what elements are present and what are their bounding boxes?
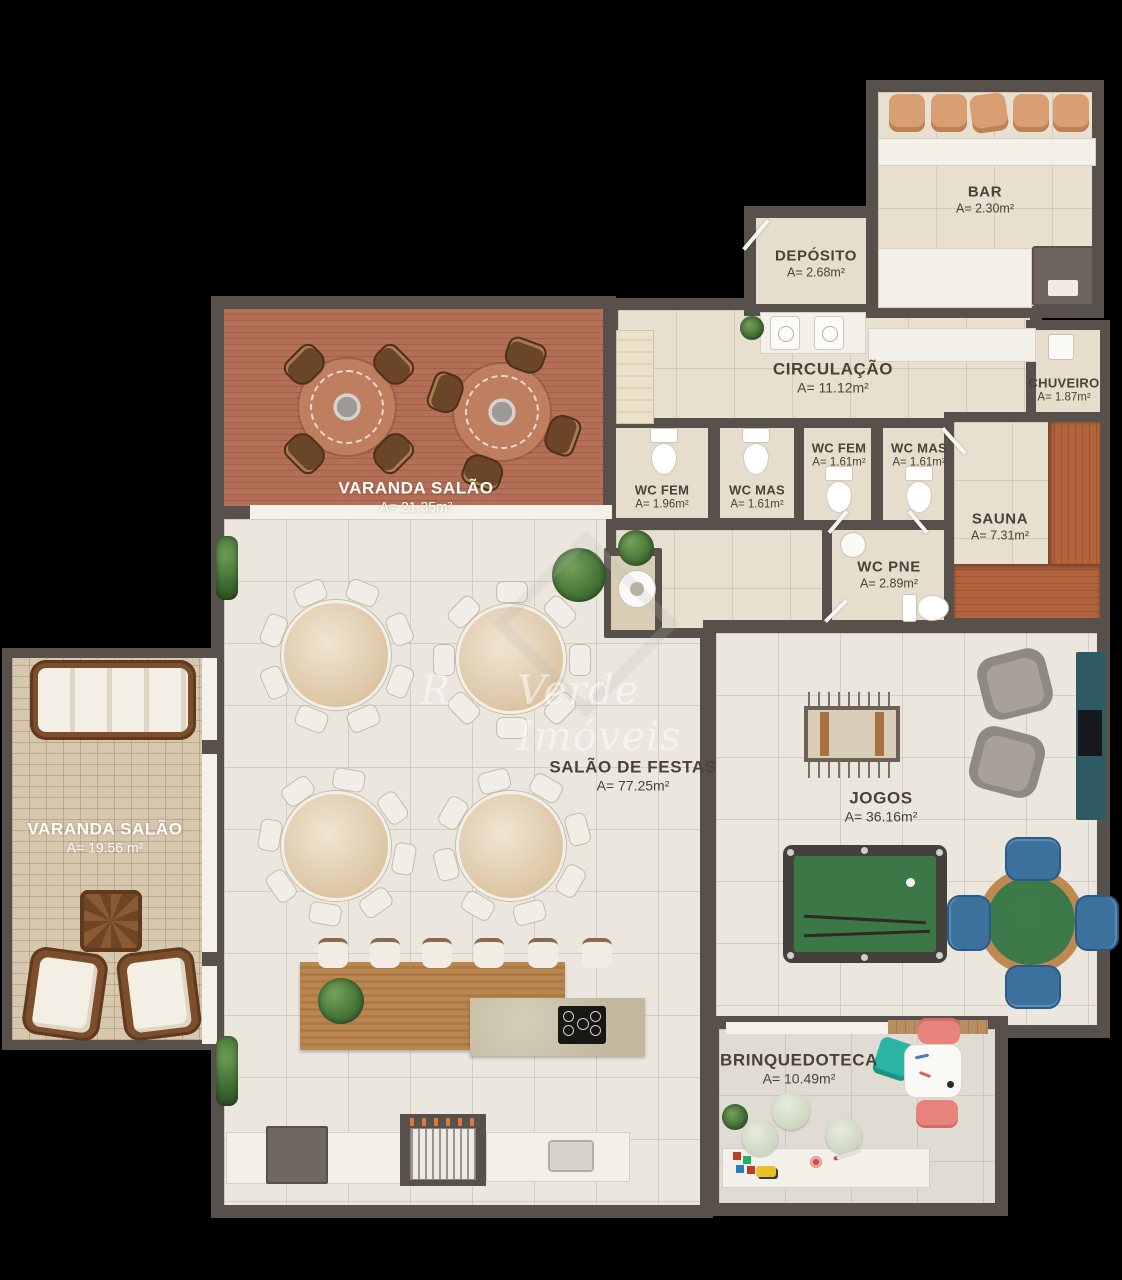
kids-plant	[722, 1104, 748, 1130]
island-stool	[582, 938, 612, 968]
wicker-side-table	[80, 890, 142, 952]
kitchen-sink	[548, 1140, 594, 1172]
pocket	[861, 954, 868, 961]
tv-console	[1076, 652, 1106, 820]
bar-stool	[1013, 94, 1049, 132]
pocket	[936, 952, 943, 959]
sauna-bench-bottom	[954, 564, 1100, 618]
toilet-bowl	[917, 595, 949, 621]
room-area: A= 1.61m²	[812, 456, 867, 470]
patio-table	[454, 364, 550, 460]
pocket	[787, 849, 794, 856]
room-label-wc-pne: WC PNE A= 2.89m²	[857, 559, 921, 592]
room-label-varanda-top: VARANDA SALÃO A= 21.35m²	[338, 478, 493, 515]
room-label-deposito: DEPÓSITO A= 2.68m²	[775, 248, 857, 281]
sofa-cushions	[38, 668, 188, 732]
island-stool	[474, 938, 504, 968]
cooktop	[558, 1006, 606, 1044]
pool-felt	[794, 856, 936, 952]
bar-counter	[878, 138, 1096, 166]
room-label-chuveiro: CHUVEIRO A= 1.87m²	[1028, 375, 1099, 404]
table-ring	[465, 375, 539, 449]
bar-stool	[931, 94, 967, 132]
plant-hedge	[216, 1036, 238, 1106]
room-area: A= 2.30m²	[956, 202, 1014, 217]
hall-counter	[868, 328, 1036, 362]
room-name: CHUVEIRO	[1028, 375, 1099, 391]
toilet-bowl	[826, 481, 852, 513]
pouf	[742, 1120, 778, 1156]
kids-chair-pink	[916, 1100, 958, 1128]
bar-stool	[969, 92, 1010, 135]
kids-table	[904, 1044, 962, 1098]
room-area: A= 2.68m²	[775, 266, 857, 281]
pocket	[936, 849, 943, 856]
watermark-text-row: R Verde Imóveis	[420, 668, 780, 760]
room-label-wc-fem-small: WC FEM A= 1.61m²	[812, 440, 867, 469]
patio-table	[299, 359, 395, 455]
room-label-bar: BAR A= 2.30m²	[956, 184, 1014, 217]
room-name: WC MAS	[729, 482, 785, 498]
toilet	[742, 428, 768, 474]
chair	[1005, 837, 1061, 881]
room-area: A= 1.61m²	[891, 456, 947, 470]
foosball-goal	[875, 712, 884, 756]
floorplan: VARANDA SALÃO A= 21.35m² VARANDA SALÃO A…	[0, 0, 1122, 1280]
foosball-goal	[820, 712, 829, 756]
room-area: A= 1.96m²	[635, 498, 690, 512]
chair	[1075, 895, 1119, 951]
room-label-brinquedoteca: BRINQUEDOTECA A= 10.49m²	[720, 1050, 878, 1087]
chair-cushion	[126, 957, 192, 1034]
room-name: DEPÓSITO	[775, 248, 857, 266]
pouf	[772, 1092, 810, 1130]
toilet-bowl	[906, 481, 932, 513]
charcoal-grill	[410, 1128, 476, 1180]
toilet-accessible	[902, 596, 948, 622]
vanity-sink	[814, 316, 844, 350]
foosball-table	[804, 706, 900, 762]
room-name: WC PNE	[857, 559, 921, 577]
room-area: A= 36.16m²	[845, 809, 918, 826]
room-name: VARANDA SALÃO	[338, 478, 493, 498]
island-stool	[422, 938, 452, 968]
room-area: A= 10.49m²	[720, 1071, 878, 1088]
dining-table	[456, 791, 566, 901]
room-name: WC MAS	[891, 440, 947, 456]
window-salao-left	[202, 658, 217, 1044]
toilet	[825, 466, 851, 512]
wall-notch	[202, 952, 217, 966]
burner	[577, 1018, 589, 1030]
armchair-cushion	[984, 655, 1046, 715]
island-stool	[370, 938, 400, 968]
room-name: VARANDA SALÃO	[27, 819, 182, 839]
armchair-cushion	[975, 733, 1038, 794]
crayon-mark	[919, 1071, 931, 1078]
room-label-sauna: SAUNA A= 7.31m²	[971, 511, 1029, 544]
toy-car	[756, 1166, 776, 1177]
pool-table	[783, 845, 947, 963]
wicker-armchair	[20, 945, 109, 1043]
chair	[947, 895, 991, 951]
bar-back-counter	[878, 248, 1032, 308]
table-dot	[947, 1081, 954, 1088]
grill-skewers	[410, 1118, 476, 1126]
pocket	[861, 847, 868, 854]
room-area: A= 11.12m²	[773, 380, 893, 397]
plant-hedge	[216, 536, 238, 600]
toy-blocks	[733, 1152, 757, 1176]
room-name: BAR	[956, 184, 1014, 202]
cue-stick	[804, 930, 930, 937]
machine-tray	[1048, 280, 1078, 296]
room-area: A= 19.56 m²	[27, 840, 182, 857]
toilet-tank	[902, 594, 917, 622]
island-stool	[528, 938, 558, 968]
round-washbasin	[840, 532, 866, 558]
toilet-tank	[650, 428, 678, 443]
burner	[590, 1011, 601, 1022]
room-area: A= 21.35m²	[338, 499, 493, 516]
burner	[563, 1025, 574, 1036]
vanity-sink	[770, 316, 800, 350]
watermark-text: Verde Imóveis	[517, 668, 780, 760]
bar-stool	[1053, 94, 1089, 132]
room-name: WC FEM	[635, 482, 690, 498]
room-label-jogos: JOGOS A= 36.16m²	[845, 788, 918, 825]
coffee-machine	[1032, 246, 1094, 306]
cue-stick	[804, 915, 926, 924]
room-name: WC FEM	[812, 440, 867, 456]
burner	[563, 1011, 574, 1022]
card-table	[978, 868, 1084, 974]
chair	[1005, 965, 1061, 1009]
toilet-bowl	[743, 443, 769, 475]
room-label-wc-fem: WC FEM A= 1.96m²	[635, 482, 690, 511]
room-label-varanda-left: VARANDA SALÃO A= 19.56 m²	[27, 819, 182, 856]
hall-bench	[616, 330, 654, 424]
cue-ball	[906, 878, 915, 887]
toilet-bowl	[651, 443, 677, 475]
bar-stool	[889, 94, 925, 132]
pocket	[787, 952, 794, 959]
window-brinquedoteca-top	[726, 1022, 888, 1034]
burner	[590, 1025, 601, 1036]
room-area: A= 2.89m²	[857, 577, 921, 592]
wicker-armchair	[115, 946, 203, 1043]
toilet	[905, 466, 931, 512]
dining-table	[281, 600, 391, 710]
room-label-wc-mas: WC MAS A= 1.61m²	[729, 482, 785, 511]
room-name: CIRCULAÇÃO	[773, 359, 893, 379]
watermark: R Verde Imóveis	[420, 552, 780, 732]
room-area: A= 77.25m²	[549, 778, 716, 795]
wall-notch	[202, 740, 217, 754]
crayon-mark	[915, 1054, 929, 1060]
toilet	[650, 428, 676, 474]
room-name: BRINQUEDOTECA	[720, 1050, 878, 1070]
dining-table	[281, 791, 391, 901]
room-label-wc-mas-small: WC MAS A= 1.61m²	[891, 440, 947, 469]
freezer	[266, 1126, 328, 1184]
chair-cushion	[31, 956, 98, 1033]
island-stool	[318, 938, 348, 968]
toy-top	[810, 1156, 822, 1168]
island-plant	[318, 978, 364, 1024]
table-ring	[310, 370, 384, 444]
room-area: A= 7.31m²	[971, 529, 1029, 544]
kids-chair-pink	[918, 1018, 960, 1044]
room-name: JOGOS	[845, 788, 918, 808]
room-area: A= 1.61m²	[729, 498, 785, 512]
tv-screen	[1078, 710, 1102, 756]
wicker-sofa	[30, 660, 196, 740]
room-area: A= 1.87m²	[1028, 391, 1099, 405]
vanity-plant	[740, 316, 764, 340]
toilet-tank	[742, 428, 770, 443]
watermark-fragment: R	[420, 668, 451, 714]
room-label-salao: SALÃO DE FESTAS A= 77.25m²	[549, 757, 716, 794]
shower-head	[1048, 334, 1074, 360]
room-name: SAUNA	[971, 511, 1029, 529]
room-label-circulacao: CIRCULAÇÃO A= 11.12m²	[773, 359, 893, 396]
room-name: SALÃO DE FESTAS	[549, 757, 716, 777]
